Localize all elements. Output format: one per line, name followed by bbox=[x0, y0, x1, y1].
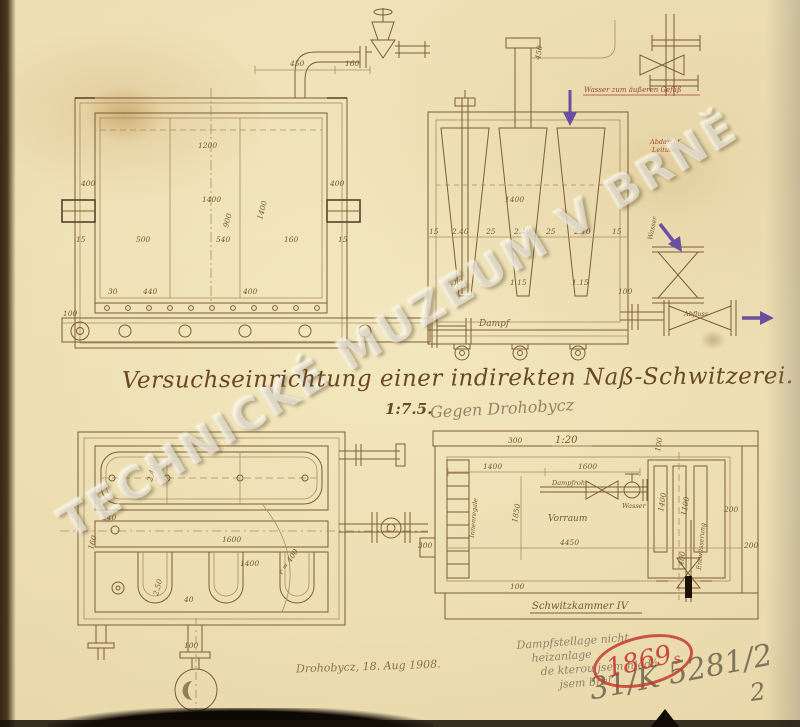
dim-label: 160 bbox=[345, 59, 360, 68]
label-entwaesserung: Entwässerung bbox=[695, 523, 707, 572]
dim-label: 100 bbox=[184, 641, 199, 650]
label-schwitzkammer: Schwitzkammer IV bbox=[532, 601, 630, 612]
dim-label: 1400 bbox=[483, 462, 502, 471]
dim-label: 2.40 bbox=[451, 227, 469, 236]
drawing-title: Versuchseinrichtung einer indirekten Naß… bbox=[122, 364, 642, 394]
dim-label: 1100 bbox=[679, 496, 691, 517]
dim-label: 30 bbox=[108, 287, 118, 296]
dim-label: 100 bbox=[618, 287, 633, 296]
dim-label: 1200 bbox=[198, 141, 217, 150]
label-dampfrohr: Dampfrohr bbox=[551, 479, 589, 487]
scan-edge-left bbox=[0, 0, 16, 727]
dim-label: 450 bbox=[289, 59, 305, 68]
label-wasser: Wasser bbox=[646, 215, 659, 241]
dim-label: 2.50 bbox=[151, 578, 164, 598]
dim-label: 300 bbox=[418, 541, 433, 550]
dim-label: 1600 bbox=[578, 462, 597, 471]
dim-label: 15 bbox=[429, 227, 439, 236]
dim-label: 40 bbox=[183, 595, 194, 604]
scanned-drawing-page: 450 160 1200 400 400 1400 900 1400 15 50… bbox=[0, 0, 800, 727]
dim-label: 540 bbox=[216, 235, 231, 244]
stamp-year: 1869 bbox=[603, 640, 674, 684]
dim-label: 1400 bbox=[505, 195, 524, 204]
dim-label: 100 bbox=[653, 436, 664, 452]
dim-label: 200 bbox=[743, 541, 759, 550]
dim-label: 440 bbox=[142, 287, 158, 296]
label-register: Innenregale bbox=[468, 498, 480, 540]
dim-label: 1.15 bbox=[572, 278, 589, 287]
dim-label: 15 bbox=[612, 227, 622, 236]
dim-label: 500 bbox=[136, 235, 151, 244]
dim-label: 900 bbox=[221, 212, 233, 228]
dim-label: 100 bbox=[63, 309, 78, 318]
drawing-room-plan: 1:20 300 1400 1600 100 1400 1100 200 185… bbox=[418, 431, 759, 619]
dim-label: 25 bbox=[485, 227, 496, 236]
label-wasser-gefaess: Wasser zum äußeren Gefäß bbox=[584, 86, 682, 94]
dim-label: 400 bbox=[242, 287, 258, 296]
label-abfluss: Abfluss bbox=[683, 310, 709, 318]
dim-label: 15 bbox=[76, 235, 86, 244]
pipe-label-dampf: Dampf bbox=[478, 319, 511, 329]
dim-label: 4450 bbox=[559, 538, 579, 547]
scan-edge-right bbox=[766, 0, 800, 727]
dim-label: 1400 bbox=[255, 200, 269, 221]
room-label-vorraum: Vorraum bbox=[548, 514, 587, 524]
dim-label: 450 bbox=[533, 44, 545, 61]
scan-edge-bottom-line bbox=[0, 720, 800, 727]
dim-label: 1600 bbox=[222, 535, 241, 544]
scan-tear-triangle bbox=[650, 709, 680, 727]
dim-label: 1400 bbox=[240, 559, 259, 568]
dim-label: 300 bbox=[508, 436, 523, 445]
dim-label: 15 bbox=[338, 235, 348, 244]
dim-label: 400 bbox=[329, 179, 345, 188]
dim-label: 1850 bbox=[510, 503, 522, 524]
dim-label: 100 bbox=[510, 582, 525, 591]
dim-label: 400 bbox=[80, 179, 96, 188]
dim-label: 160 bbox=[284, 235, 299, 244]
label-wasser-plan: Wasser bbox=[622, 502, 647, 510]
scale-label: 1:20 bbox=[555, 435, 578, 446]
dim-label: 1400 bbox=[656, 492, 668, 513]
dim-label: 200 bbox=[723, 505, 739, 514]
drawing-scale: 1:7.5. bbox=[385, 400, 432, 418]
dim-label: 1400 bbox=[202, 195, 221, 204]
